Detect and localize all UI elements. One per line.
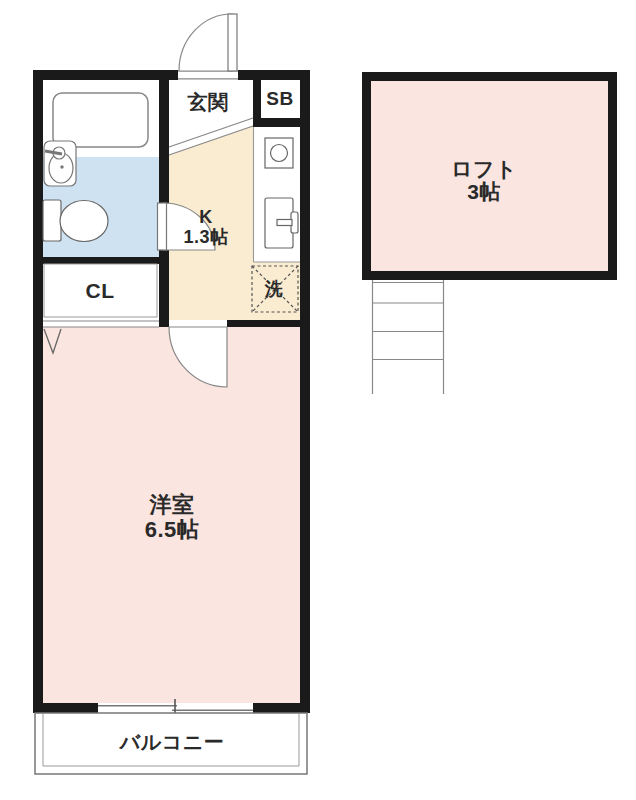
genkan-label: 玄関 (188, 89, 229, 116)
loft-unit (362, 72, 617, 394)
main-unit (33, 14, 310, 774)
wall-genkan-shoebox (253, 80, 261, 118)
wash-basin-icon (44, 141, 76, 186)
wall-shoebox-bottom (253, 118, 300, 127)
kitchen-label: K 1.3帖 (183, 207, 228, 247)
toilet-icon (43, 200, 108, 242)
floor-plan: 玄関 SB K 1.3帖 CL 洗 洋室 6.5帖 バルコニー ロフト 3帖 (0, 0, 636, 800)
bathtub-icon (53, 93, 148, 147)
shoebox-label: SB (266, 88, 293, 110)
wall-bath-kitchen-upper (159, 80, 169, 203)
western-room-label: 洋室 6.5帖 (145, 492, 200, 542)
balcony-label: バルコニー (120, 729, 224, 756)
wall-kitchen-room (227, 320, 300, 327)
washer-label: 洗 (265, 277, 284, 301)
stove-burner-icon (271, 145, 288, 162)
loft-label: ロフト 3帖 (451, 157, 517, 203)
wall-bath-closet (43, 257, 169, 264)
loft-ladder-icon (373, 280, 444, 394)
closet-label: CL (86, 279, 115, 303)
entrance-door-icon (178, 14, 238, 80)
floor-plan-drawing (0, 0, 636, 800)
